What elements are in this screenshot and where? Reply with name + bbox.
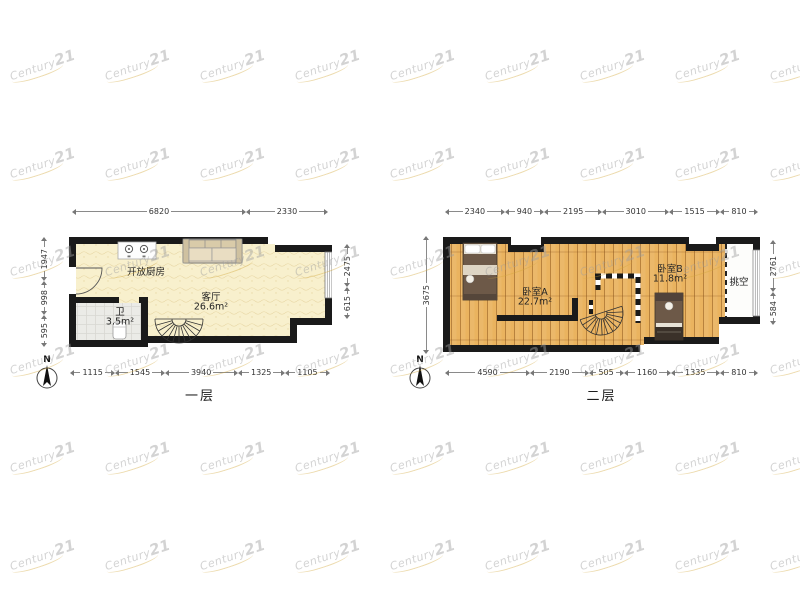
watermark: Century21 <box>197 143 268 182</box>
dimension-segment: 2761 <box>767 240 779 292</box>
watermark: Century21 <box>672 437 743 476</box>
watermark: Century21 <box>292 143 363 182</box>
watermark: Century21 <box>672 535 743 574</box>
room-area-bedroom-b: 11.8m² <box>653 274 687 285</box>
bathroom-wall <box>141 297 148 343</box>
dimension-segment: 1115 <box>70 368 115 377</box>
floor2-dims-top: 2340940219530101515810 <box>445 206 758 217</box>
dimension-segment: 1335 <box>671 368 720 377</box>
watermark: Century21 <box>577 143 648 182</box>
watermark: Century21 <box>102 45 173 84</box>
dimension-value: 6820 <box>147 207 171 216</box>
watermark: Century21 <box>7 143 78 182</box>
dimension-value: 1115 <box>80 368 104 377</box>
floor2-dims-left: 3675 <box>420 236 432 354</box>
dimension-value: 1325 <box>249 368 273 377</box>
watermark: Century21 <box>387 45 458 84</box>
dimension-value: 2761 <box>769 254 778 278</box>
dimension-segment: 2190 <box>530 368 589 377</box>
watermark: Century21 <box>387 437 458 476</box>
floor2-dims-right: 2761584 <box>767 240 779 325</box>
dimension-segment: 3675 <box>420 236 432 354</box>
watermark: Century21 <box>672 143 743 182</box>
dimension-value: 1335 <box>683 368 707 377</box>
watermark: Century21 <box>482 535 553 574</box>
compass-n-label: N <box>407 356 433 364</box>
dimension-segment: 2195 <box>544 207 602 216</box>
watermark: Century21 <box>767 45 800 84</box>
bed-b <box>655 293 683 340</box>
watermark: Century21 <box>7 535 78 574</box>
floor1-title: 一层 <box>70 385 330 404</box>
entry-door-opening <box>69 267 76 294</box>
floor1-dims-bottom: 11151545394013251105 <box>70 367 330 378</box>
room-area-living: 26.6m² <box>194 302 228 313</box>
watermark: Century21 <box>292 535 363 574</box>
dimension-segment: 3010 <box>602 207 669 216</box>
dimension-segment: 2475 <box>341 244 353 287</box>
floor1-dims-right: 2475615 <box>341 244 353 319</box>
dimension-segment: 595 <box>38 315 50 347</box>
dimension-segment: 1947 <box>38 237 50 281</box>
dimension-value: 595 <box>40 321 49 340</box>
interior-wall <box>572 298 578 321</box>
dimension-segment: 998 <box>38 281 50 315</box>
watermark: Century21 <box>7 437 78 476</box>
dimension-value: 2190 <box>547 368 571 377</box>
watermark: Century21 <box>672 45 743 84</box>
dimension-value: 2330 <box>275 207 299 216</box>
room-area-bedroom-a: 22.7m² <box>518 297 552 308</box>
dimension-value: 3940 <box>189 368 213 377</box>
watermark: Century21 <box>102 143 173 182</box>
dimension-value: 584 <box>769 299 778 318</box>
watermark: Century21 <box>102 437 173 476</box>
floor2-plan <box>443 230 760 355</box>
dimension-segment: 615 <box>341 287 353 319</box>
dimension-value: 1105 <box>295 368 319 377</box>
dimension-value: 1515 <box>682 207 706 216</box>
dimension-value: 810 <box>729 368 748 377</box>
dimension-segment: 1325 <box>238 368 285 377</box>
floor1-dims-top: 68202330 <box>72 206 328 217</box>
window <box>753 250 760 316</box>
floor2-dims-bottom: 4590219050511601335810 <box>445 367 758 378</box>
dimension-segment: 810 <box>720 207 758 216</box>
floorplan-image: 68202330 1947998595 2475615 <box>0 0 800 600</box>
compass-floor2: N <box>407 356 433 394</box>
dimension-segment: 2340 <box>445 207 505 216</box>
dimension-value: 810 <box>729 207 748 216</box>
dimension-value: 3010 <box>624 207 648 216</box>
watermark: Century21 <box>387 535 458 574</box>
watermark: Century21 <box>387 143 458 182</box>
watermark: Century21 <box>197 535 268 574</box>
dimension-segment: 940 <box>505 207 544 216</box>
floor2-title: 二层 <box>443 385 760 404</box>
dimension-value: 615 <box>343 294 352 313</box>
dimension-segment: 2330 <box>246 207 328 216</box>
watermark: Century21 <box>102 535 173 574</box>
room-label-void: 挑空 <box>729 274 748 288</box>
dimension-value: 2475 <box>343 254 352 278</box>
room-area-bath: 3.5m² <box>106 317 134 328</box>
bathroom-door-gap <box>119 296 139 304</box>
dimension-segment: 1160 <box>624 368 671 377</box>
dimension-segment: 1515 <box>669 207 720 216</box>
dimension-segment: 6820 <box>72 207 246 216</box>
watermark: Century21 <box>7 45 78 84</box>
window <box>325 252 332 298</box>
room-label-kitchen: 开放厨房 <box>127 264 165 278</box>
watermark: Century21 <box>482 143 553 182</box>
stove-icon <box>118 242 156 259</box>
dimension-segment: 1105 <box>285 368 330 377</box>
dimension-value: 2340 <box>463 207 487 216</box>
watermark: Century21 <box>767 437 800 476</box>
interior-wall <box>497 315 577 321</box>
dimension-value: 940 <box>515 207 534 216</box>
watermark: Century21 <box>577 535 648 574</box>
dimension-value: 1160 <box>635 368 659 377</box>
dimension-segment: 505 <box>589 368 624 377</box>
watermark: Century21 <box>197 45 268 84</box>
sofa <box>183 239 242 263</box>
dimension-value: 3675 <box>422 283 431 307</box>
dimension-segment: 810 <box>720 368 758 377</box>
watermark: Century21 <box>292 45 363 84</box>
compass-icon <box>407 364 433 390</box>
dimension-segment: 3940 <box>165 368 238 377</box>
dimension-value: 505 <box>596 368 615 377</box>
watermark: Century21 <box>292 437 363 476</box>
dimension-value: 998 <box>40 288 49 307</box>
compass-icon <box>34 364 60 390</box>
watermark: Century21 <box>767 339 800 378</box>
dimension-value: 2195 <box>561 207 585 216</box>
watermark: Century21 <box>577 437 648 476</box>
watermark: Century21 <box>767 535 800 574</box>
watermark: Century21 <box>482 437 553 476</box>
floor1-dims-left: 1947998595 <box>38 237 50 347</box>
dimension-segment: 584 <box>767 292 779 325</box>
dimension-value: 1545 <box>128 368 152 377</box>
compass-n-label: N <box>34 356 60 364</box>
watermark: Century21 <box>767 143 800 182</box>
compass-floor1: N <box>34 356 60 394</box>
watermark: Century21 <box>482 45 553 84</box>
dimension-segment: 4590 <box>445 368 530 377</box>
dimension-segment: 1545 <box>115 368 164 377</box>
dimension-value: 4590 <box>475 368 499 377</box>
dimension-value: 1947 <box>40 247 49 271</box>
watermark: Century21 <box>197 437 268 476</box>
watermark: Century21 <box>577 45 648 84</box>
bed-a <box>463 243 497 300</box>
